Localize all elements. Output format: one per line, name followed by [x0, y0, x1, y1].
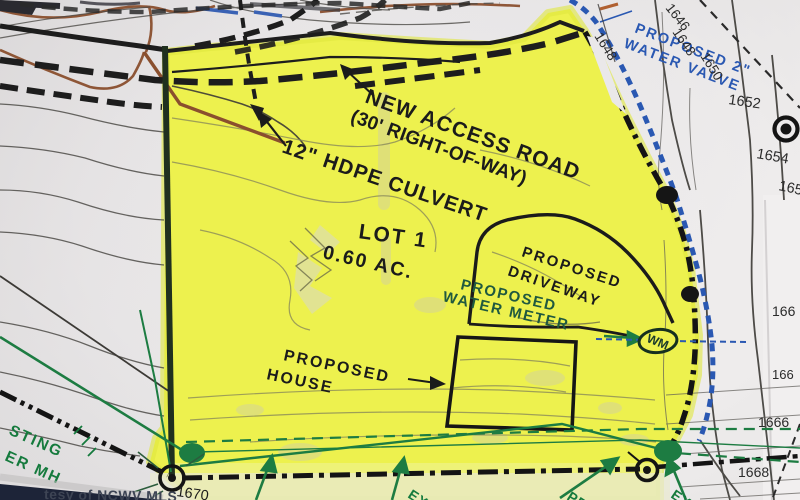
svg-text:166: 166: [772, 303, 796, 319]
svg-text:1666: 1666: [758, 414, 789, 430]
svg-text:166: 166: [772, 367, 794, 382]
svg-text:tesy of NCWV MLS: tesy of NCWV MLS: [44, 486, 177, 500]
svg-text:1668: 1668: [738, 464, 769, 480]
